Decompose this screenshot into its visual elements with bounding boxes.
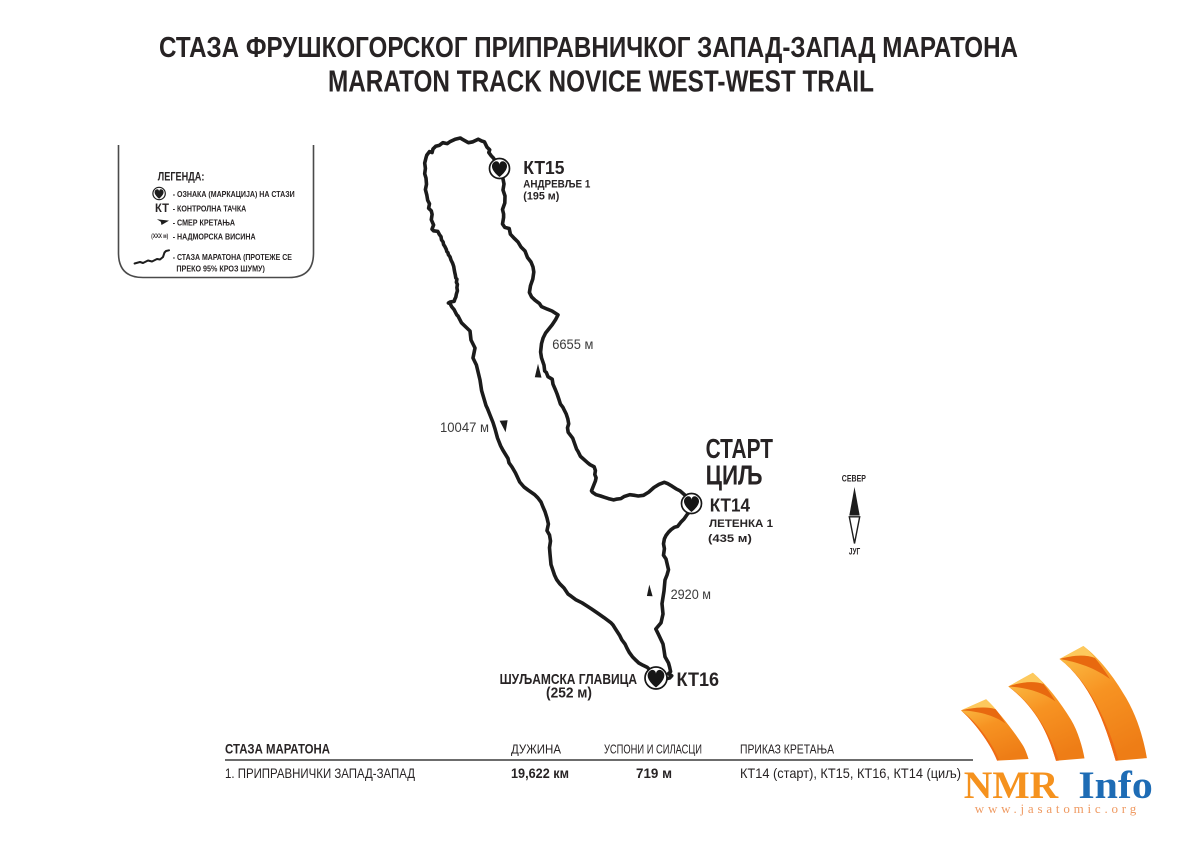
svg-text:КТ14 (старт), КТ15, КТ16, КТ14: КТ14 (старт), КТ15, КТ16, КТ14 (циљ): [740, 766, 961, 781]
svg-text:ПРИКАЗ КРЕТАЊА: ПРИКАЗ КРЕТАЊА: [740, 742, 834, 757]
svg-text:19,622 км: 19,622 км: [511, 766, 569, 781]
svg-text:КТ14: КТ14: [710, 495, 751, 516]
svg-text:10047 м: 10047 м: [440, 419, 489, 435]
svg-text:ЛЕГЕНДА:: ЛЕГЕНДА:: [158, 171, 205, 183]
svg-text:- НАДМОРСКА ВИСИНА: - НАДМОРСКА ВИСИНА: [173, 233, 256, 242]
svg-text:MARATON TRACK NOVICE WEST-WEST: MARATON TRACK NOVICE WEST-WEST TRAIL: [328, 65, 874, 99]
svg-text:СЕВЕР: СЕВЕР: [842, 474, 866, 484]
svg-text:(ХХХ м): (ХХХ м): [151, 234, 168, 240]
svg-text:ЛЕТЕНКА 1: ЛЕТЕНКА 1: [709, 518, 773, 530]
svg-text:- ОЗНАКА (МАРКАЦИЈА) НА СТАЗИ: - ОЗНАКА (МАРКАЦИЈА) НА СТАЗИ: [173, 190, 295, 199]
svg-text:КТ: КТ: [155, 203, 169, 215]
svg-text:КТ15: КТ15: [523, 157, 564, 178]
svg-text:ЈУГ: ЈУГ: [849, 547, 860, 557]
svg-text:АНДРЕВЉЕ 1: АНДРЕВЉЕ 1: [523, 179, 590, 191]
svg-text:1. ПРИПРАВНИЧКИ ЗАПАД-ЗАПАД: 1. ПРИПРАВНИЧКИ ЗАПАД-ЗАПАД: [225, 766, 416, 781]
svg-text:719 м: 719 м: [636, 766, 672, 781]
svg-text:- КОНТРОЛНА ТАЧКА: - КОНТРОЛНА ТАЧКА: [173, 205, 247, 214]
svg-text:УСПОНИ И СИЛАСЦИ: УСПОНИ И СИЛАСЦИ: [604, 742, 702, 757]
svg-text:КТ16: КТ16: [677, 670, 720, 691]
svg-text:ЦИЉ: ЦИЉ: [706, 460, 763, 491]
svg-text:СТАЗА ФРУШКОГОРСКОГ ПРИПРАВНИЧ: СТАЗА ФРУШКОГОРСКОГ ПРИПРАВНИЧКОГ ЗАПАД-…: [159, 32, 1018, 64]
svg-text:(195 м): (195 м): [523, 191, 559, 203]
svg-text:6655 м: 6655 м: [552, 336, 593, 352]
svg-text:- СМЕР КРЕТАЊА: - СМЕР КРЕТАЊА: [173, 219, 235, 228]
svg-text:- СТАЗА МАРАТОНА (ПРОТЕЖЕ СЕ: - СТАЗА МАРАТОНА (ПРОТЕЖЕ СЕ: [173, 253, 293, 262]
svg-text:ПРЕКО 95% КРОЗ ШУМУ): ПРЕКО 95% КРОЗ ШУМУ): [176, 265, 265, 274]
svg-text:ДУЖИНА: ДУЖИНА: [511, 742, 561, 757]
svg-text:СТАЗА МАРАТОНА: СТАЗА МАРАТОНА: [225, 742, 330, 757]
svg-text:(435 м): (435 м): [708, 533, 752, 545]
svg-text:2920 м: 2920 м: [671, 586, 711, 602]
svg-text:(252 м): (252 м): [546, 685, 592, 702]
